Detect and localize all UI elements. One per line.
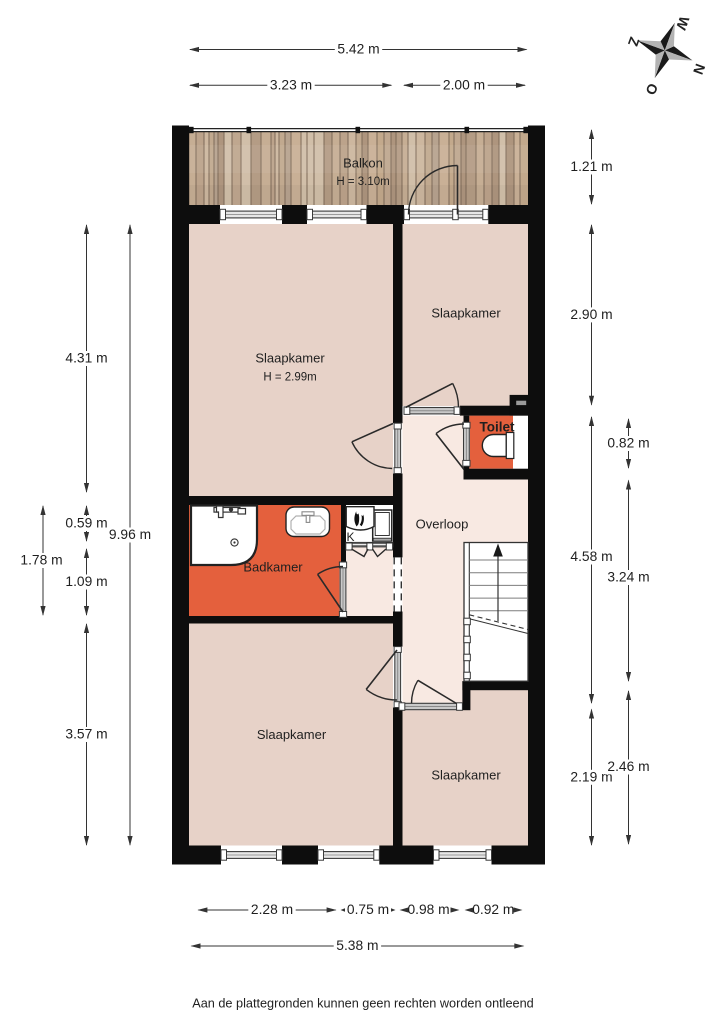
svg-text:4.58 m: 4.58 m bbox=[570, 549, 612, 564]
svg-text:1.09 m: 1.09 m bbox=[65, 574, 107, 589]
svg-text:2.28 m: 2.28 m bbox=[251, 902, 293, 917]
svg-text:4.31 m: 4.31 m bbox=[65, 351, 107, 366]
svg-text:0.59 m: 0.59 m bbox=[65, 516, 107, 531]
svg-text:2.00 m: 2.00 m bbox=[443, 78, 485, 93]
svg-text:5.42 m: 5.42 m bbox=[337, 42, 379, 57]
svg-text:1.78 m: 1.78 m bbox=[20, 553, 62, 568]
svg-text:5.38 m: 5.38 m bbox=[336, 938, 378, 953]
svg-text:3.57 m: 3.57 m bbox=[65, 727, 107, 742]
svg-text:Balkon: Balkon bbox=[343, 156, 383, 171]
svg-text:Slaapkamer: Slaapkamer bbox=[431, 768, 501, 783]
svg-text:Toilet: Toilet bbox=[480, 420, 516, 435]
svg-text:0.82 m: 0.82 m bbox=[607, 436, 649, 451]
svg-text:Slaapkamer: Slaapkamer bbox=[255, 351, 325, 366]
svg-text:H = 2.99m: H = 2.99m bbox=[263, 372, 316, 384]
svg-text:3.24 m: 3.24 m bbox=[607, 570, 649, 585]
svg-text:3.23 m: 3.23 m bbox=[270, 78, 312, 93]
svg-text:Overloop: Overloop bbox=[416, 517, 469, 532]
svg-text:9.96 m: 9.96 m bbox=[109, 527, 151, 542]
svg-text:0.75 m: 0.75 m bbox=[347, 902, 389, 917]
svg-text:2.46 m: 2.46 m bbox=[607, 759, 649, 774]
svg-text:Aan de plattegronden kunnen ge: Aan de plattegronden kunnen geen rechten… bbox=[192, 997, 533, 1011]
svg-text:0.92 m: 0.92 m bbox=[472, 902, 514, 917]
svg-text:Slaapkamer: Slaapkamer bbox=[431, 306, 501, 321]
svg-text:1.21 m: 1.21 m bbox=[570, 159, 612, 174]
svg-text:H = 3.10m: H = 3.10m bbox=[336, 176, 389, 188]
svg-text:2.90 m: 2.90 m bbox=[570, 307, 612, 322]
svg-text:0.98 m: 0.98 m bbox=[408, 902, 450, 917]
svg-text:Badkamer: Badkamer bbox=[243, 560, 303, 575]
svg-text:Slaapkamer: Slaapkamer bbox=[257, 727, 327, 742]
